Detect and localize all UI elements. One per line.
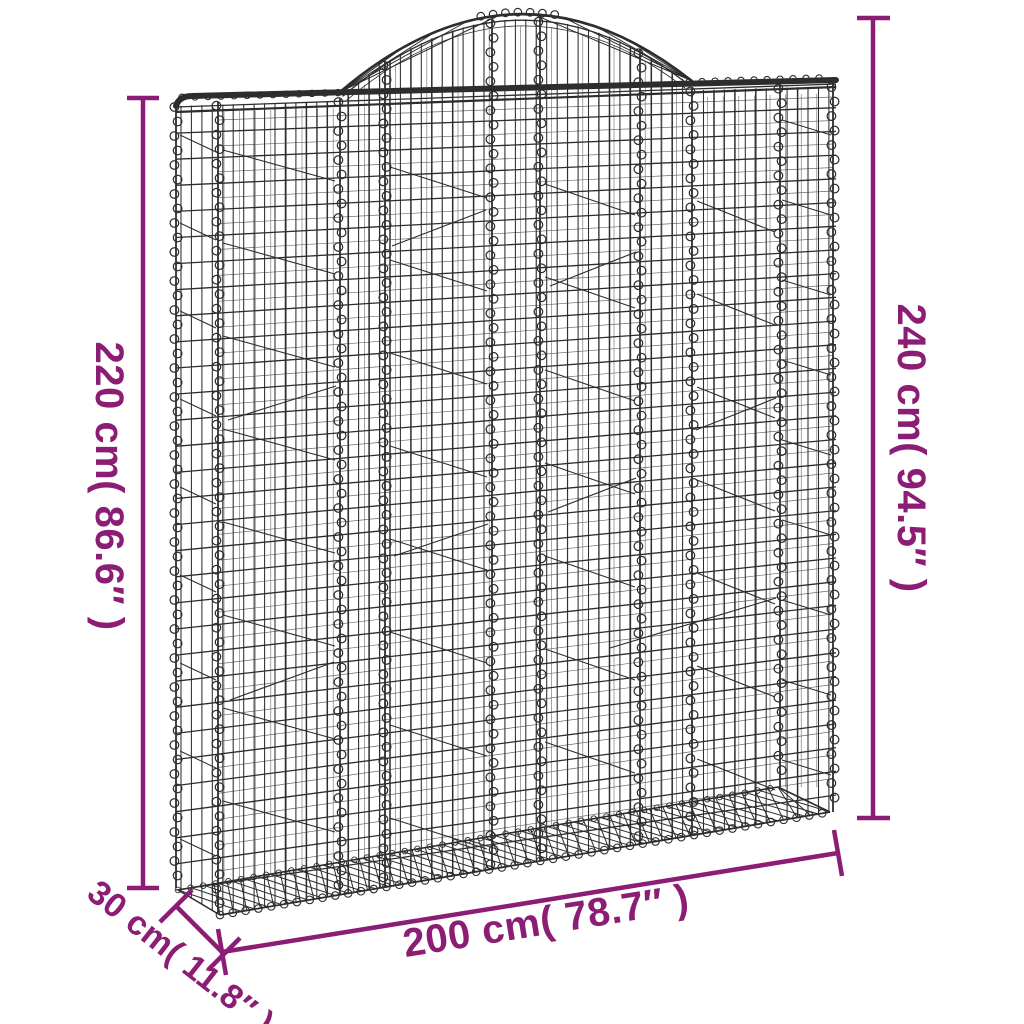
height-front-label: 220 cm( 86.6″ ) — [87, 341, 131, 630]
base-mesh — [175, 786, 830, 919]
dimension-height-front: 220 cm( 86.6″ ) — [87, 98, 159, 888]
height-total-label: 240 cm( 94.5″ ) — [889, 303, 933, 592]
front-mesh — [176, 19, 836, 914]
dimension-height-total: 240 cm( 94.5″ ) — [857, 18, 933, 818]
gabion-basket-wireframe — [170, 8, 839, 918]
gabion-diagram-canvas: 220 cm( 86.6″ ) 240 cm( 94.5″ ) 200 cm( … — [0, 0, 1024, 1024]
product-dimension-diagram: 220 cm( 86.6″ ) 240 cm( 94.5″ ) 200 cm( … — [0, 0, 1024, 1024]
width-label: 200 cm( 78.7″ ) — [400, 876, 692, 966]
dimension-width: 200 cm( 78.7″ ) — [218, 830, 842, 975]
